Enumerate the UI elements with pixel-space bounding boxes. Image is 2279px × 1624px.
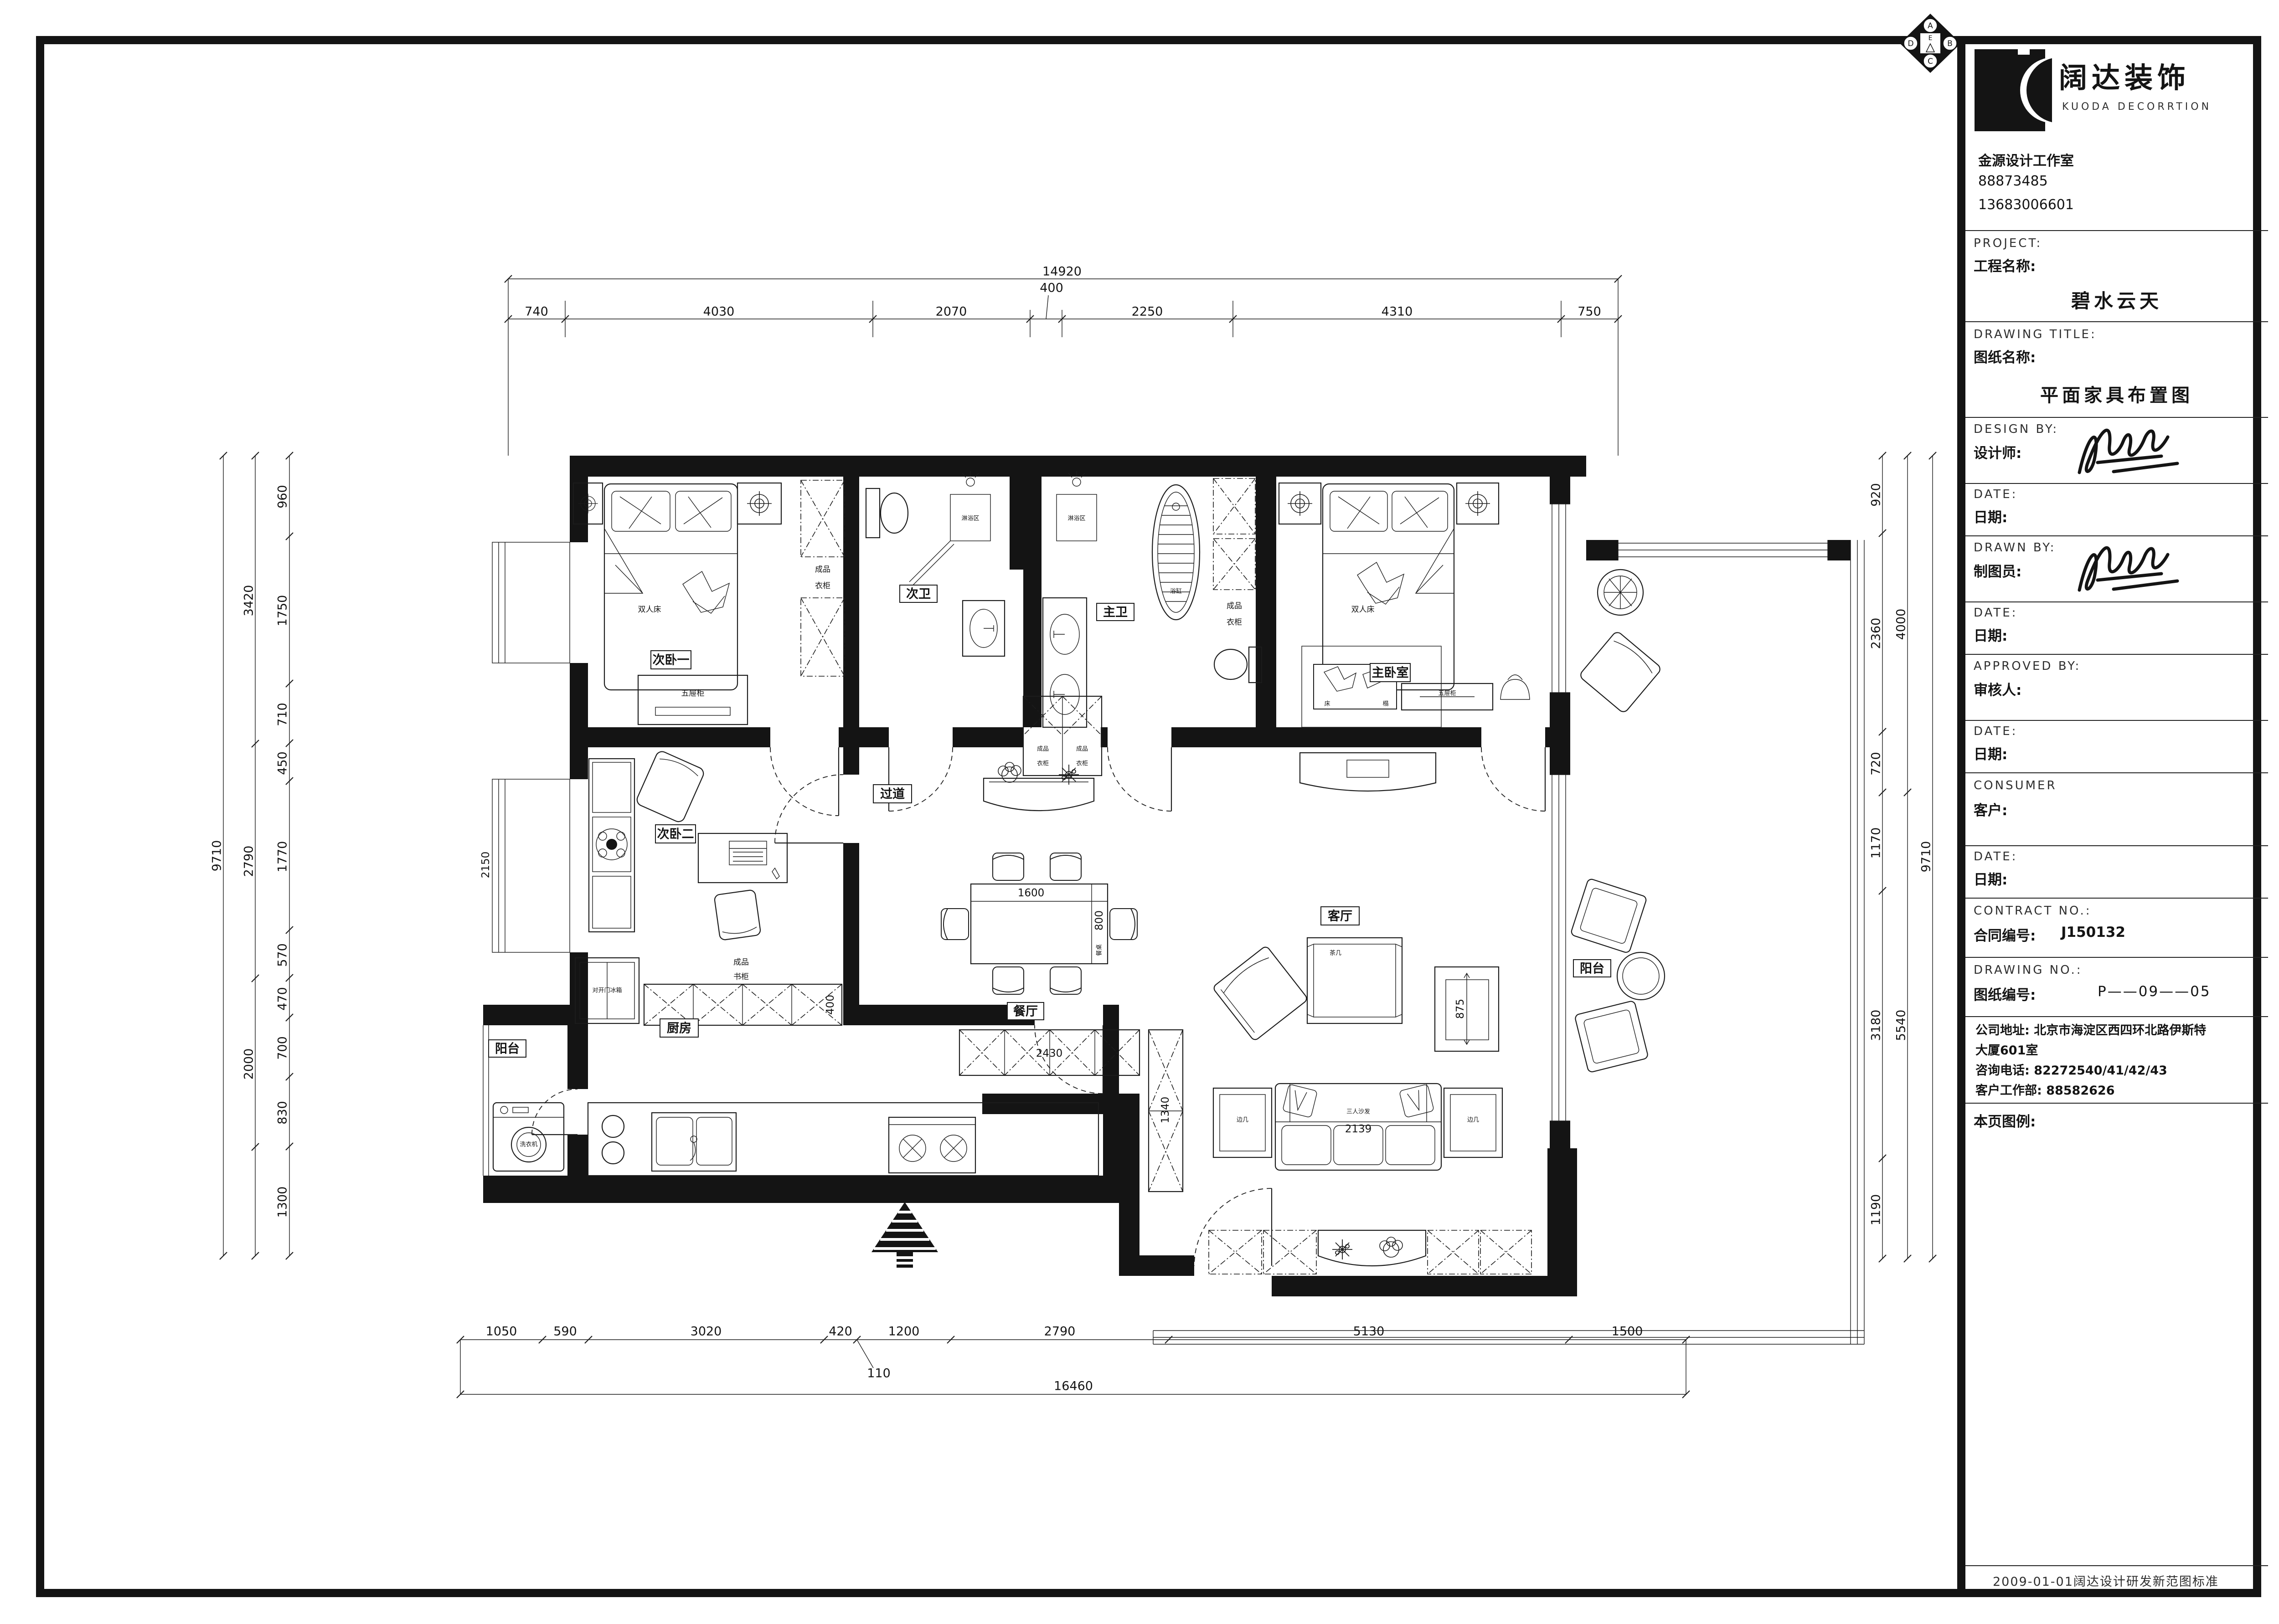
dining-chair <box>993 853 1024 880</box>
cad-sheet: A B C D E <box>0 0 2279 1624</box>
drawn-by-label-en: DRAWN BY: <box>1974 541 2056 555</box>
consumer-label-cn: 客户: <box>1974 799 2007 819</box>
legend-label: 本页图例: <box>1974 1110 2036 1131</box>
compass-e: B <box>1947 39 1953 48</box>
dim-text: 9710 <box>1919 841 1934 873</box>
dim-text: 470 <box>276 987 290 1011</box>
company-address-2: 大厦601室 <box>1975 1041 2038 1061</box>
room-label-balcony-right: 阳台 <box>1580 961 1604 976</box>
room-label-hall: 过道 <box>880 787 905 802</box>
drawing-no-row: DRAWING NO.: 图纸编号: P——09——05 <box>1965 957 2268 1016</box>
wardrobe-label: 衣柜 <box>1037 760 1049 767</box>
date-label-cn: 日期: <box>1974 743 2007 763</box>
dim-text: 830 <box>276 1101 290 1125</box>
drawing-no-label-en: DRAWING NO.: <box>1974 963 2083 977</box>
bedroom1-furniture: 双人床 成品 衣柜 五屉柜 <box>573 480 845 725</box>
bed-label: 双人床 <box>1351 605 1375 614</box>
dim-text: 920 <box>1869 483 1883 507</box>
studio-phone: 88873485 <box>1978 173 2048 189</box>
dim-sofa: 2139 <box>1345 1123 1372 1135</box>
project-row: PROJECT: 工程名称: 碧水云天 <box>1965 230 2268 321</box>
dining-chair <box>1050 853 1081 880</box>
bathroom1-furniture: 淋浴区 浴缸 成品 衣柜 <box>1043 471 1262 727</box>
entry-arrow-icon <box>871 1202 938 1268</box>
company-address-1: 公司地址: 北京市海淀区西四环北路伊斯特 <box>1975 1021 2206 1041</box>
plant-icon <box>1380 1237 1402 1257</box>
bench-label: 床 <box>1324 701 1330 708</box>
date-row-3: DATE: 日期: <box>1965 720 2268 772</box>
dim-bottom: 1050 590 3020 420 1200 2790 5130 1500 11… <box>457 1325 1690 1398</box>
dim-text: 2070 <box>936 305 967 319</box>
contract-value: J150132 <box>2061 924 2125 940</box>
bench-label: 榻 <box>1382 701 1388 708</box>
designer-signature <box>2070 413 2221 491</box>
dim-text: 400 <box>1040 281 1063 295</box>
bedroom2-furniture: 成品 书柜 400 2150 <box>480 750 842 1025</box>
bookcase-label: 书柜 <box>733 972 749 982</box>
date-label-en: DATE: <box>1974 488 2017 501</box>
room-label-dining: 餐厅 <box>1013 1005 1038 1019</box>
wardrobe-label: 衣柜 <box>815 581 830 591</box>
drawing-no-label-cn: 图纸编号: <box>1974 983 2036 1004</box>
legend-row: 本页图例: <box>1965 1103 2268 1565</box>
standard-note: 2009-01-01阔达设计研发新范图标准 <box>1993 1572 2219 1589</box>
side-table-label: 边几 <box>1467 1117 1479 1124</box>
title-block: 阔达装饰 KUODA DECORRTION 金源设计工作室 88873485 1… <box>1960 36 2268 1595</box>
wardrobe-label: 成品 <box>1076 746 1088 753</box>
brand-name-en: KUODA DECORRTION <box>2062 101 2212 113</box>
dim-text: 4000 <box>1894 609 1908 640</box>
walls <box>483 456 1851 1296</box>
room-label-master: 主卧室 <box>1372 666 1409 680</box>
dim-text: 9710 <box>210 840 224 872</box>
studio-name: 金源设计工作室 <box>1978 149 2074 170</box>
balcony-left-furniture: 洗衣机 <box>493 1103 564 1171</box>
consumer-label-en: CONSUMER <box>1974 779 2057 792</box>
dim-text: 4310 <box>1382 305 1413 319</box>
dim-top: 14920 740 4030 2070 400 2250 4310 750 <box>505 265 1622 456</box>
project-label-cn: 工程名称: <box>1974 255 2036 275</box>
dim-bay: 2150 <box>480 852 492 879</box>
compass-w: D <box>1908 39 1913 48</box>
side-table-label: 边几 <box>1237 1117 1248 1124</box>
design-by-label-en: DESIGN BY: <box>1974 422 2058 436</box>
dim-text: 2360 <box>1869 618 1883 649</box>
dim-text: 1500 <box>1612 1325 1643 1339</box>
sheet-border <box>40 40 2257 1593</box>
dim-text: 720 <box>1869 752 1883 776</box>
date-row-2: DATE: 日期: <box>1965 601 2268 654</box>
dim-text: 590 <box>553 1325 577 1339</box>
dim-text: 2790 <box>1044 1325 1076 1339</box>
tea-table-label: 茶几 <box>1330 950 1341 957</box>
project-value: 碧水云天 <box>1965 286 2268 313</box>
date-label-cn: 日期: <box>1974 868 2007 889</box>
living-furniture: 茶几 875 三人沙发 2139 边几 边几 <box>1209 938 1531 1274</box>
dim-text: 570 <box>276 943 290 967</box>
address-row: 公司地址: 北京市海淀区西四环北路伊斯特 大厦601室 咨询电话: 822725… <box>1965 1016 2268 1103</box>
date-row-4: DATE: 日期: <box>1965 845 2268 898</box>
fridge-label: 对开门冰箱 <box>592 987 622 994</box>
room-label-bed1: 次卧一 <box>653 653 690 668</box>
dim-text: 1300 <box>276 1187 290 1218</box>
drawing-title-value: 平面家具布置图 <box>1965 380 2268 407</box>
dining-chair <box>993 967 1024 994</box>
drawn-by-row: DRAWN BY: 制图员: <box>1965 535 2268 601</box>
drawing-no-value: P——09——05 <box>2098 983 2211 1000</box>
dim-text: 4030 <box>703 305 735 319</box>
room-label-bed2: 次卧二 <box>657 827 694 842</box>
date-row-1: DATE: 日期: <box>1965 483 2268 535</box>
footer-row: 2009-01-01阔达设计研发新范图标准 <box>1965 1565 2268 1591</box>
customer-dept-phone: 客户工作部: 88582626 <box>1975 1081 2115 1101</box>
bathroom2-furniture: 淋浴区 <box>866 471 1005 656</box>
drawn-by-label-cn: 制图员: <box>1974 560 2021 581</box>
date-label-cn: 日期: <box>1974 624 2007 645</box>
dim-text: 1200 <box>888 1325 920 1339</box>
dim-text: 14920 <box>1042 265 1082 279</box>
plant-icon <box>1332 1239 1352 1259</box>
draftsman-signature <box>2070 531 2221 608</box>
dim-shoe-cabinet: 1340 <box>1160 1097 1171 1124</box>
dim-table-d: 800 <box>1093 910 1105 930</box>
compass-n: A <box>1928 21 1933 31</box>
room-label-bath1: 主卫 <box>1103 606 1128 620</box>
design-by-row: DESIGN BY: 设计师: <box>1965 417 2268 483</box>
dining-chair <box>1050 967 1081 994</box>
approved-by-label-cn: 审核人: <box>1974 678 2021 699</box>
drawing-title-label-cn: 图纸名称: <box>1974 346 2036 366</box>
approved-by-label-en: APPROVED BY: <box>1974 659 2081 673</box>
dim-text: 3180 <box>1869 1010 1883 1041</box>
dim-text: 1750 <box>276 595 290 627</box>
hall-furniture: 成品 衣柜 成品 衣柜 <box>984 696 1436 811</box>
studio-mobile: 13683006601 <box>1978 197 2074 213</box>
dim-sideboard: 2430 <box>1036 1048 1063 1059</box>
approved-by-row: APPROVED BY: 审核人: <box>1965 654 2268 720</box>
floor-plan-canvas: A B C D E <box>0 0 2279 1624</box>
dim-text: 700 <box>276 1036 290 1060</box>
dim-text: 420 <box>829 1325 852 1339</box>
dim-text: 3020 <box>691 1325 722 1339</box>
date-label-en: DATE: <box>1974 606 2017 620</box>
wardrobe-label: 成品 <box>1037 746 1049 753</box>
dim-text: 1190 <box>1869 1194 1883 1226</box>
dim-text: 1050 <box>486 1325 517 1339</box>
dim-text: 1770 <box>276 841 290 873</box>
drawing-title-row: DRAWING TITLE: 图纸名称: 平面家具布置图 <box>1965 321 2268 417</box>
wardrobe-label: 成品 <box>815 565 830 574</box>
brand-name: 阔达装饰 <box>2059 55 2190 96</box>
wardrobe-label: 衣柜 <box>1227 618 1242 627</box>
dim-text: 3420 <box>242 585 256 617</box>
contract-label-cn: 合同编号: <box>1974 924 2036 945</box>
date-label-cn: 日期: <box>1974 506 2007 526</box>
room-label-kitchen: 厨房 <box>667 1022 691 1036</box>
date-label-en: DATE: <box>1974 850 2017 863</box>
room-label-living: 客厅 <box>1328 909 1352 924</box>
dim-text: 710 <box>276 703 290 726</box>
dim-armchair: 875 <box>1454 999 1466 1019</box>
drawing-title-label-en: DRAWING TITLE: <box>1974 328 2097 341</box>
dim-text: 5130 <box>1353 1325 1385 1339</box>
dim-right: 920 2360 720 1170 3180 1190 4000 5540 97… <box>1869 452 1937 1262</box>
shower-label: 淋浴区 <box>1067 515 1085 522</box>
compass-icon: A B C D E <box>1900 14 1961 73</box>
dim-text: 750 <box>1578 305 1601 319</box>
bag-icon <box>1500 675 1530 699</box>
dim-text: 450 <box>276 751 290 775</box>
dim-text: 2250 <box>1132 305 1163 319</box>
dim-text: 1170 <box>1869 827 1883 859</box>
date-label-en: DATE: <box>1974 725 2017 738</box>
dim-text: 16460 <box>1054 1379 1093 1393</box>
dim-table-w: 1600 <box>1018 887 1045 899</box>
company-phone: 咨询电话: 82272540/41/42/43 <box>1975 1061 2167 1081</box>
room-label-balcony-left: 阳台 <box>495 1042 520 1056</box>
kuoda-logo <box>1975 49 2052 136</box>
dining-table-label: 餐桌 <box>1096 944 1103 956</box>
drawer-chest-label: 五屉柜 <box>1438 690 1456 697</box>
dining-chair <box>941 909 969 940</box>
compass-c: E <box>1928 35 1933 42</box>
dim-text: 2790 <box>242 846 256 877</box>
contract-row: CONTRACT NO.: 合同编号: J150132 <box>1965 898 2268 957</box>
master-furniture: 双人床 床 榻 五屉柜 <box>1279 483 1530 727</box>
wardrobe-label: 衣柜 <box>1076 760 1088 767</box>
dim-left: 960 1750 710 450 1770 570 470 700 830 13… <box>210 452 294 1259</box>
washer-label: 洗衣机 <box>520 1141 537 1148</box>
sofa-label: 三人沙发 <box>1346 1108 1370 1115</box>
room-label-bath2: 次卫 <box>906 587 931 601</box>
drawer-chest-label: 五屉柜 <box>681 689 705 698</box>
dim-text: 740 <box>525 305 548 319</box>
bookcase-label: 成品 <box>733 958 749 967</box>
shower-label: 淋浴区 <box>961 515 979 522</box>
dining-chair <box>1110 909 1137 940</box>
design-by-label-cn: 设计师: <box>1974 442 2021 462</box>
bed1-label: 双人床 <box>638 605 661 614</box>
consumer-row: CONSUMER 客户: <box>1965 772 2268 845</box>
wardrobe-label: 成品 <box>1227 601 1242 611</box>
dim-bookcase: 400 <box>825 995 836 1015</box>
dim-text: 110 <box>867 1367 891 1381</box>
dim-text: 2000 <box>242 1048 256 1080</box>
plant-icon <box>998 762 1021 782</box>
compass-s: C <box>1928 57 1933 66</box>
project-label-en: PROJECT: <box>1974 236 2042 250</box>
dim-text: 5540 <box>1894 1010 1908 1041</box>
logo-cell: 阔达装饰 KUODA DECORRTION 金源设计工作室 88873485 1… <box>1965 36 2268 230</box>
dim-text: 960 <box>276 485 290 509</box>
windows <box>483 504 1864 1344</box>
terrace-furniture <box>1570 570 1665 1073</box>
contract-label-en: CONTRACT NO.: <box>1974 904 2091 918</box>
bathtub-label: 浴缸 <box>1170 588 1182 595</box>
